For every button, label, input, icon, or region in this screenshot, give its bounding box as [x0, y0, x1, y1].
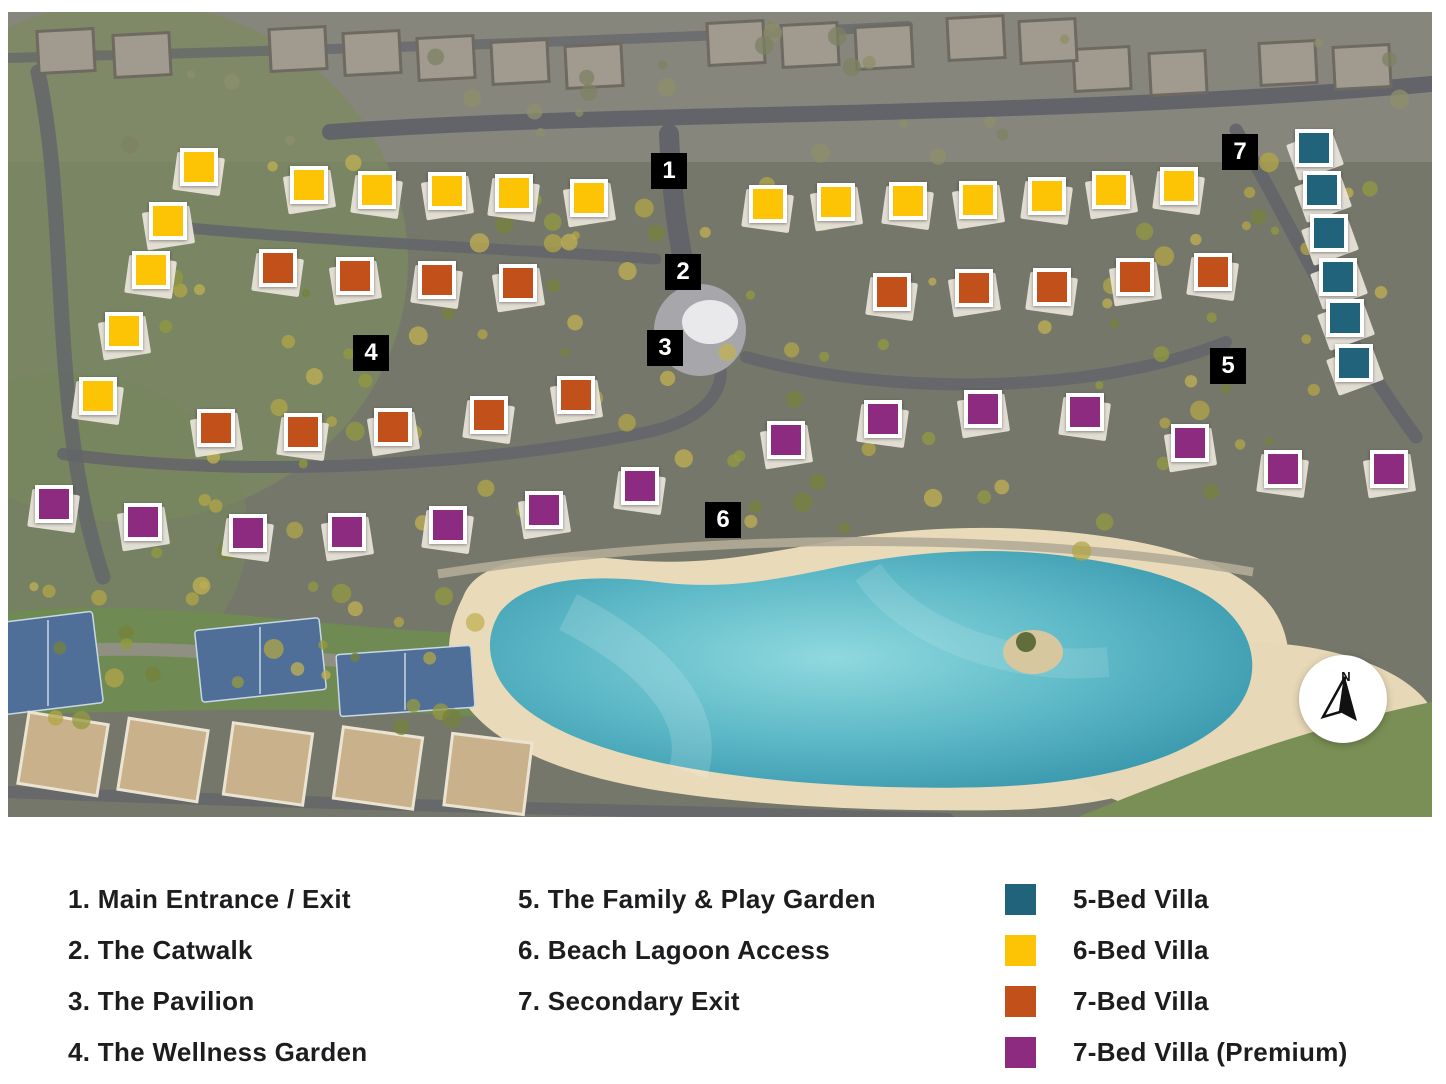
villa-5bed-swatch	[1005, 884, 1036, 915]
villa-6bed-swatch	[1005, 935, 1036, 966]
villa-marker-6-bed[interactable]	[959, 181, 997, 219]
villa-marker-7-bed[interactable]	[418, 261, 456, 299]
villa-marker-7-bed[interactable]	[1194, 253, 1232, 291]
villa-marker-6-bed[interactable]	[358, 171, 396, 209]
villa-marker-7-bed[interactable]	[336, 257, 374, 295]
villa-marker-7-bed[interactable]	[470, 396, 508, 434]
legend-villa-row: 6-Bed Villa	[1005, 925, 1348, 976]
legend-poi-item: 6. Beach Lagoon Access	[518, 925, 876, 976]
villa-marker-6-bed[interactable]	[817, 183, 855, 221]
poi-marker-5: 5	[1210, 348, 1246, 384]
villa-marker-7-bed[interactable]	[499, 264, 537, 302]
legend-villa-row: 7-Bed Villa	[1005, 976, 1348, 1027]
villa-marker-6-bed[interactable]	[180, 148, 218, 186]
poi-marker-2: 2	[665, 254, 701, 290]
villa-7bed-premium-swatch	[1005, 1037, 1036, 1068]
poi-marker-7: 7	[1222, 134, 1258, 170]
villa-marker-7-bed-premium[interactable]	[1264, 450, 1302, 488]
villa-marker-7-bed-premium[interactable]	[864, 400, 902, 438]
villa-marker-6-bed[interactable]	[149, 202, 187, 240]
legend-poi-item: 7. Secondary Exit	[518, 976, 876, 1027]
villa-marker-6-bed[interactable]	[79, 377, 117, 415]
villa-marker-5-bed[interactable]	[1335, 344, 1373, 382]
villa-marker-6-bed[interactable]	[1160, 167, 1198, 205]
villa-marker-7-bed[interactable]	[197, 409, 235, 447]
villa-marker-6-bed[interactable]	[749, 185, 787, 223]
villa-marker-6-bed[interactable]	[570, 179, 608, 217]
legend-villa-label: 6-Bed Villa	[1073, 935, 1209, 966]
villa-marker-6-bed[interactable]	[1092, 171, 1130, 209]
legend-poi-item: 3. The Pavilion	[68, 976, 367, 1027]
villa-marker-6-bed[interactable]	[132, 251, 170, 289]
villa-marker-7-bed[interactable]	[873, 273, 911, 311]
legend-villa-label: 7-Bed Villa (Premium)	[1073, 1037, 1348, 1068]
villa-marker-7-bed-premium[interactable]	[1066, 393, 1104, 431]
villa-marker-5-bed[interactable]	[1295, 129, 1333, 167]
villa-marker-7-bed-premium[interactable]	[621, 467, 659, 505]
legend-poi-item: 4. The Wellness Garden	[68, 1027, 367, 1078]
villa-marker-7-bed[interactable]	[1116, 258, 1154, 296]
villa-7bed-swatch	[1005, 986, 1036, 1017]
masterplan-page: { "map": { "villa_types": [ { "id": "5-b…	[0, 0, 1446, 1084]
villa-marker-7-bed[interactable]	[374, 408, 412, 446]
villa-marker-7-bed-premium[interactable]	[124, 503, 162, 541]
legend-villa-row: 7-Bed Villa (Premium)	[1005, 1027, 1348, 1078]
villa-marker-7-bed[interactable]	[1033, 268, 1071, 306]
villa-marker-6-bed[interactable]	[889, 182, 927, 220]
villa-marker-7-bed[interactable]	[557, 376, 595, 414]
legend-villa-row: 5-Bed Villa	[1005, 874, 1348, 925]
legend: 1. Main Entrance / Exit 2. The Catwalk 3…	[0, 860, 1446, 1084]
poi-marker-6: 6	[705, 502, 741, 538]
legend-poi-item: 1. Main Entrance / Exit	[68, 874, 367, 925]
villa-marker-5-bed[interactable]	[1319, 258, 1357, 296]
villa-marker-7-bed[interactable]	[259, 249, 297, 287]
poi-marker-4: 4	[353, 335, 389, 371]
legend-poi-column-2: 5. The Family & Play Garden 6. Beach Lag…	[518, 874, 876, 1027]
legend-villa-label: 7-Bed Villa	[1073, 986, 1209, 1017]
legend-villa-label: 5-Bed Villa	[1073, 884, 1209, 915]
poi-marker-3: 3	[647, 330, 683, 366]
villa-marker-7-bed-premium[interactable]	[525, 491, 563, 529]
villa-marker-6-bed[interactable]	[290, 166, 328, 204]
villa-marker-5-bed[interactable]	[1310, 214, 1348, 252]
villa-marker-7-bed-premium[interactable]	[229, 514, 267, 552]
villa-marker-7-bed-premium[interactable]	[767, 421, 805, 459]
villa-marker-7-bed-premium[interactable]	[964, 390, 1002, 428]
villa-marker-6-bed[interactable]	[1028, 177, 1066, 215]
legend-villa-column: 5-Bed Villa 6-Bed Villa 7-Bed Villa 7-Be…	[1005, 874, 1348, 1078]
legend-poi-item: 2. The Catwalk	[68, 925, 367, 976]
villa-marker-7-bed-premium[interactable]	[328, 513, 366, 551]
legend-poi-item: 5. The Family & Play Garden	[518, 874, 876, 925]
compass-icon: N	[1299, 655, 1387, 743]
villa-marker-6-bed[interactable]	[428, 172, 466, 210]
legend-poi-column-1: 1. Main Entrance / Exit 2. The Catwalk 3…	[68, 874, 367, 1078]
villa-marker-7-bed-premium[interactable]	[35, 485, 73, 523]
villa-marker-5-bed[interactable]	[1326, 299, 1364, 337]
villa-marker-5-bed[interactable]	[1303, 171, 1341, 209]
villa-marker-7-bed[interactable]	[284, 413, 322, 451]
villa-marker-7-bed-premium[interactable]	[1171, 424, 1209, 462]
villa-marker-6-bed[interactable]	[495, 174, 533, 212]
villa-marker-7-bed-premium[interactable]	[429, 506, 467, 544]
poi-marker-1: 1	[651, 153, 687, 189]
villa-marker-7-bed[interactable]	[955, 269, 993, 307]
villa-marker-6-bed[interactable]	[105, 312, 143, 350]
villa-marker-7-bed-premium[interactable]	[1370, 450, 1408, 488]
